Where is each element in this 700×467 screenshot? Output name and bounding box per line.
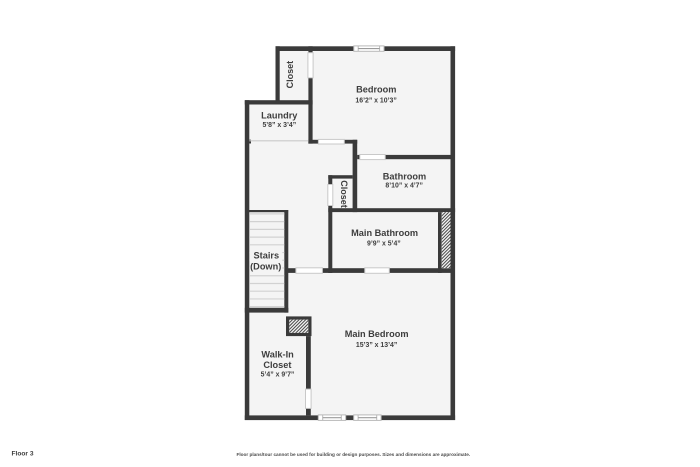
svg-text:8’10” x 4’7”: 8’10” x 4’7” [385,183,423,190]
svg-text:5’4” x 9’7”: 5’4” x 9’7” [261,372,295,379]
svg-text:Stairs: Stairs [254,250,280,260]
svg-text:Bathroom: Bathroom [383,172,426,182]
svg-text:15’3” x 13’4”: 15’3” x 13’4” [356,342,397,349]
svg-text:Walk-In: Walk-In [261,349,294,359]
svg-text:Floor 3: Floor 3 [12,451,34,458]
svg-text:Main Bathroom: Main Bathroom [351,228,418,238]
svg-text:5’8” x 3’4”: 5’8” x 3’4” [262,122,296,129]
svg-text:Closet: Closet [285,61,295,89]
svg-text:Closet: Closet [339,180,349,208]
svg-text:Floor plans/tour cannot be use: Floor plans/tour cannot be used for buil… [236,452,470,457]
svg-text:Bedroom: Bedroom [356,85,396,95]
svg-text:(Down): (Down) [250,262,281,272]
svg-text:9’9” x 5’4”: 9’9” x 5’4” [367,241,401,248]
svg-text:Laundry: Laundry [261,111,298,121]
svg-text:16’2” x 10’3”: 16’2” x 10’3” [355,98,396,105]
svg-text:Closet: Closet [263,360,291,370]
svg-text:Main Bedroom: Main Bedroom [345,329,409,339]
